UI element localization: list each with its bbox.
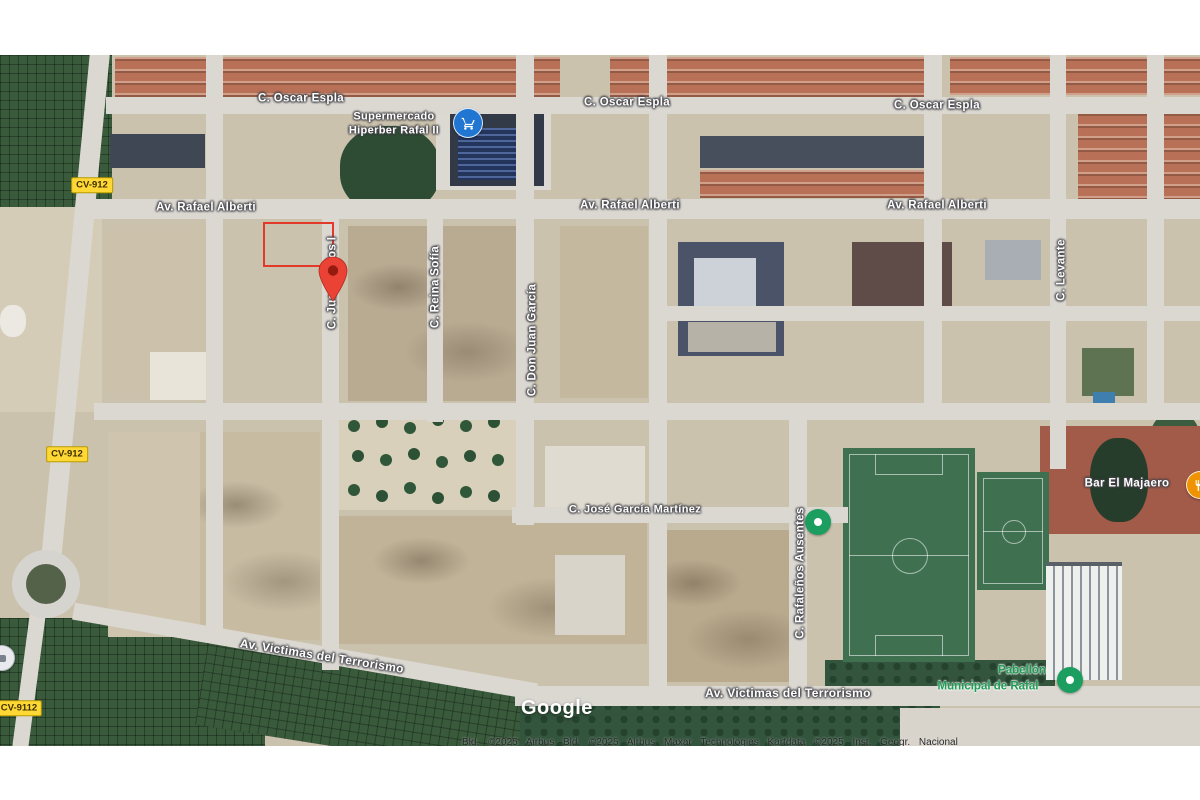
bottom-whitespace <box>0 746 1200 800</box>
shopping-cart-icon <box>461 116 476 131</box>
street-label: C. Reina Sofía <box>430 246 442 328</box>
road-vertical <box>1147 55 1164 417</box>
building-dark-roof <box>700 136 932 168</box>
red-location-pin[interactable] <box>318 256 348 302</box>
field-lines <box>1002 520 1026 544</box>
poi-label-pavilion-line1[interactable]: Pabellón <box>998 665 1046 677</box>
top-whitespace <box>0 0 1200 55</box>
street-label: C. José García Martínez <box>569 505 701 516</box>
sports-court <box>985 240 1041 280</box>
poi-label-supermarket[interactable]: Supermercado Hiperber Rafal II <box>349 112 439 137</box>
park-plaza <box>338 408 523 510</box>
road-shield-cv912: CV-912 <box>46 446 88 462</box>
street-label: Av. Victimas del Terrorismo <box>705 687 871 699</box>
poi-label-line: Supermercado <box>349 112 439 123</box>
dirt-lot <box>652 530 790 682</box>
school-yard <box>688 322 776 352</box>
street-label: C. Levante <box>1056 239 1068 301</box>
green-place-pin[interactable] <box>1057 667 1083 693</box>
football-field-small <box>977 472 1049 590</box>
map-viewport[interactable]: C. Oscar Espla C. Oscar Espla C. Oscar E… <box>0 0 1200 800</box>
roundabout-center <box>26 564 66 604</box>
road-shield-cv912: CV-912 <box>71 177 113 193</box>
garden-yard <box>1082 348 1134 396</box>
field-lines <box>892 538 928 574</box>
dirt-lot <box>560 226 648 398</box>
road-cross-street <box>94 403 1200 420</box>
street-label: C. Oscar Espla <box>584 97 670 109</box>
field-lines <box>875 454 944 475</box>
street-label: C. Don Juan García <box>527 284 539 396</box>
place-dot-icon <box>814 518 822 526</box>
poi-label-line: Hiperber Rafal II <box>349 126 439 137</box>
location-pin-icon <box>318 256 348 302</box>
roof-block <box>1078 112 1200 204</box>
street-label: C. Oscar Espla <box>894 100 980 112</box>
poi-label-bar[interactable]: Bar El Majaero <box>1085 478 1170 490</box>
street-label: C. Oscar Espla <box>258 93 344 105</box>
fork-knife-icon <box>1194 479 1200 492</box>
road-shield-cv9112: CV-9112 <box>0 700 42 716</box>
street-label: Av. Rafael Alberti <box>887 200 987 212</box>
pavilion-building <box>1046 562 1122 680</box>
football-field-main <box>843 448 975 662</box>
dirt-lot <box>108 432 200 637</box>
field-lines <box>875 635 944 656</box>
building-cluster <box>555 555 625 635</box>
poi-label-pavilion-line2[interactable]: Municipal de Rafal <box>938 681 1039 693</box>
supermarket-pin[interactable] <box>453 108 483 138</box>
street-label: Av. Rafael Alberti <box>580 200 680 212</box>
road-vertical <box>649 55 667 705</box>
place-dot-icon <box>1066 676 1074 684</box>
green-place-pin[interactable] <box>805 509 831 535</box>
small-building <box>0 305 26 337</box>
park-trees <box>348 420 360 432</box>
google-logo[interactable]: Google <box>521 697 593 720</box>
building-dark-roof <box>110 134 205 168</box>
road-vertical <box>206 55 223 635</box>
street-label: Av. Rafael Alberti <box>156 202 256 214</box>
poi-glyph-icon <box>0 655 6 662</box>
roof-block <box>700 170 932 198</box>
